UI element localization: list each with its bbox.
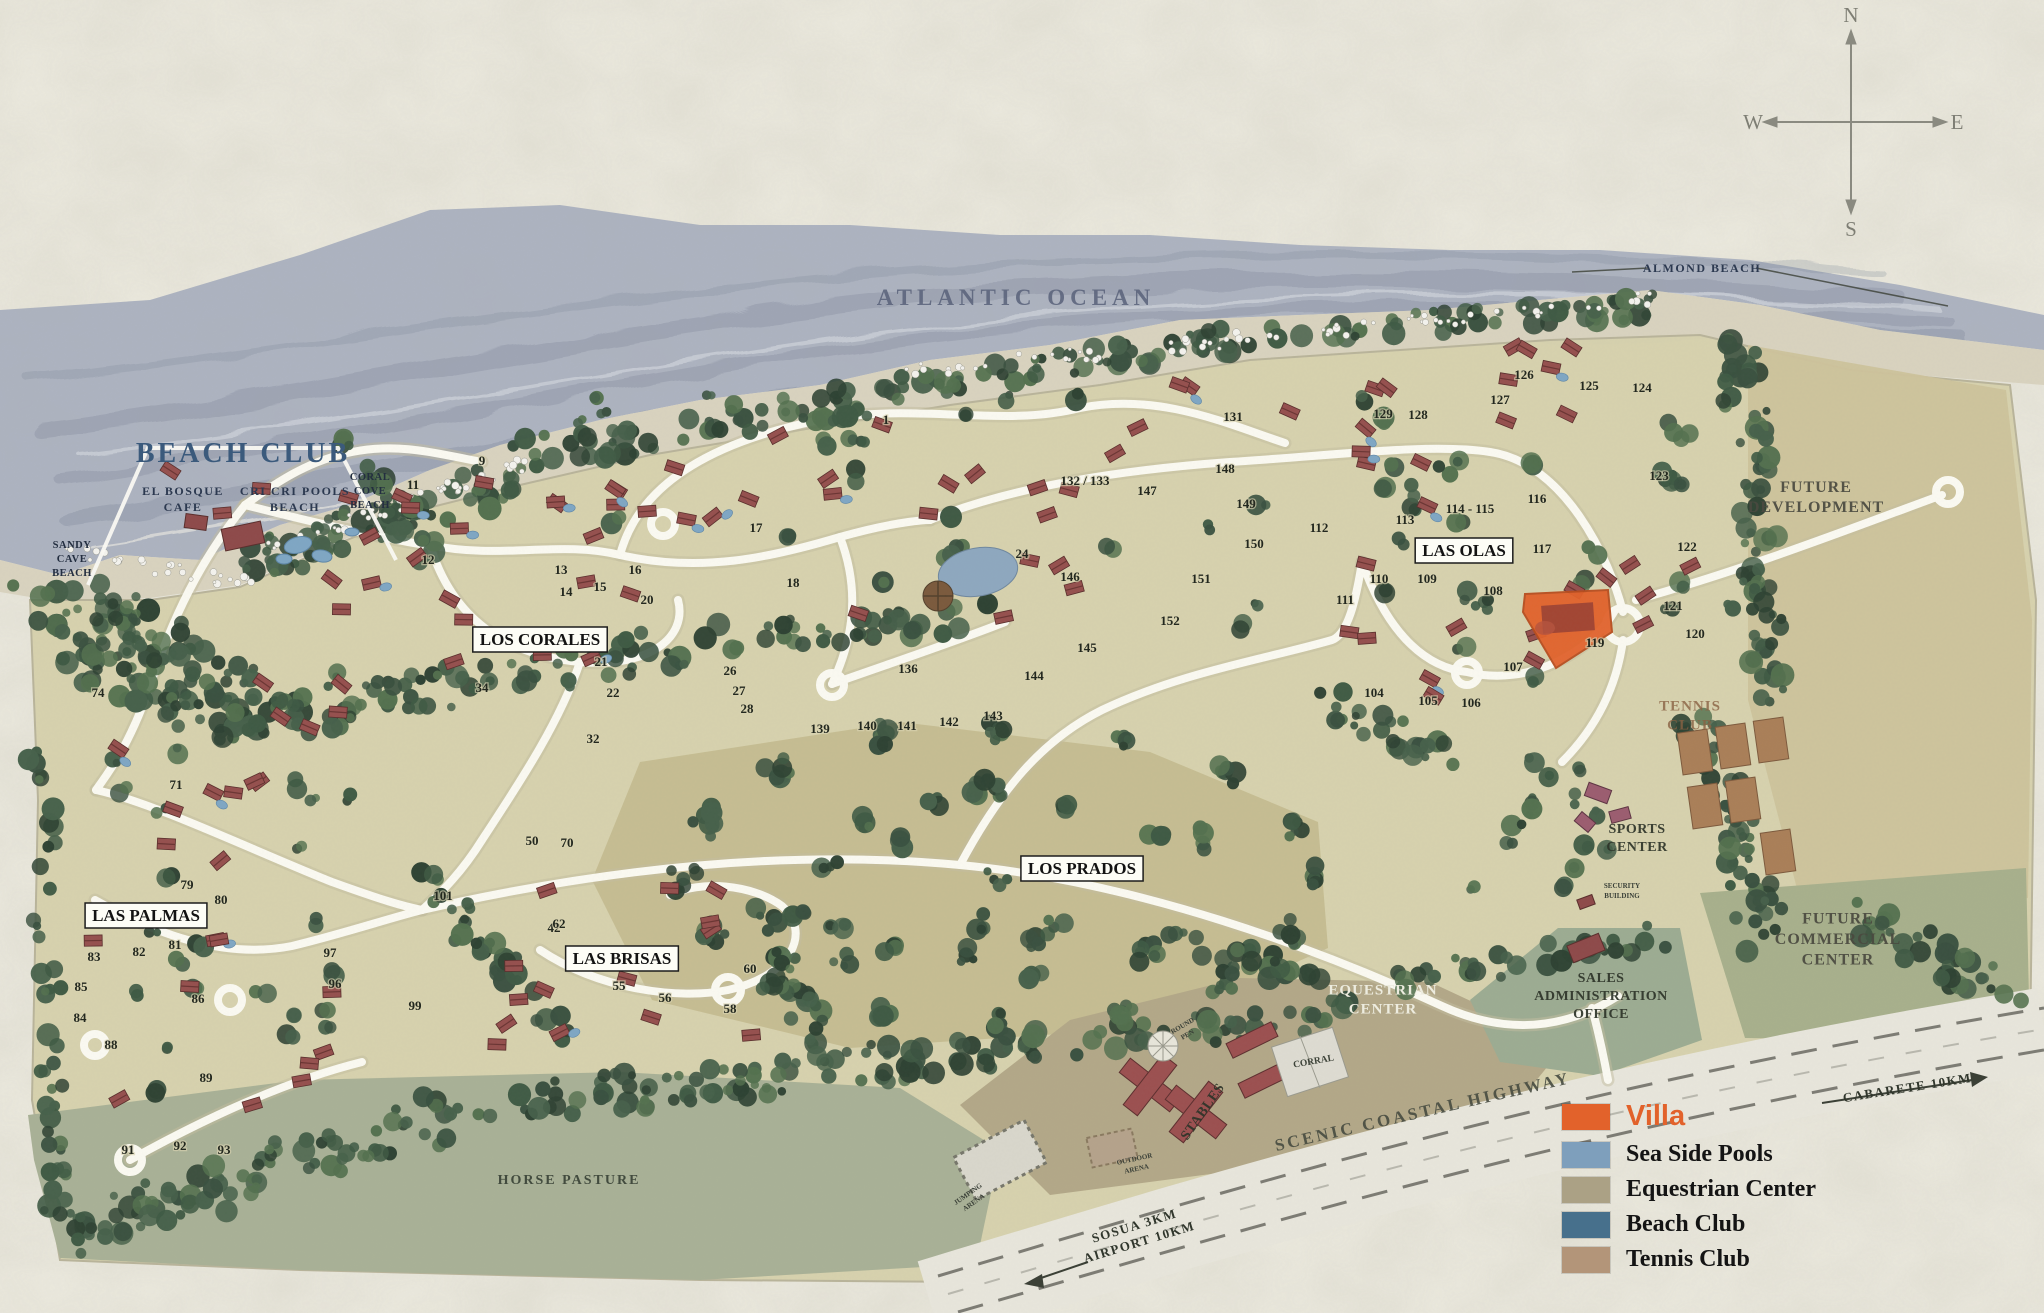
lot-127: 127	[1490, 392, 1510, 407]
svg-text:BEACH CLUB: BEACH CLUB	[136, 438, 350, 469]
map-legend: Villa Sea Side Pools Equestrian Center B…	[1562, 1100, 1862, 1281]
lot-74: 74	[92, 685, 106, 700]
legend-item-villa: Villa	[1562, 1100, 1862, 1133]
beach-club-swatch	[1562, 1212, 1610, 1238]
lot-142: 142	[939, 714, 959, 729]
lot-150: 150	[1244, 536, 1264, 551]
villa-building	[213, 507, 232, 520]
villa-building	[919, 507, 938, 520]
lot-110: 110	[1370, 571, 1389, 586]
lot-109: 109	[1417, 571, 1437, 586]
lot-116: 116	[1528, 491, 1547, 506]
resort-master-plan: N S E W 19111213141516171820212224262728…	[0, 0, 2044, 1313]
lot-12: 12	[422, 552, 435, 567]
villa-building	[505, 960, 523, 971]
svg-text:LAS BRISAS: LAS BRISAS	[573, 949, 672, 968]
lot-1: 1	[883, 412, 890, 427]
legend-label: Equestrian Center	[1626, 1176, 1816, 1203]
lot-123: 123	[1649, 468, 1669, 483]
lot-113: 113	[1396, 512, 1415, 527]
villa-building	[1340, 625, 1359, 638]
villa-building	[742, 1029, 761, 1042]
lot-14: 14	[560, 584, 574, 599]
equestrian-center-swatch	[1562, 1177, 1610, 1203]
svg-text:ALMOND BEACH: ALMOND BEACH	[1643, 261, 1761, 275]
villa-building	[332, 604, 350, 615]
lot-32: 32	[587, 731, 600, 746]
lot-146: 146	[1060, 569, 1080, 584]
villa-building	[157, 838, 176, 850]
lot-71: 71	[170, 777, 183, 792]
villa-building	[300, 1057, 319, 1070]
lot-18: 18	[787, 575, 801, 590]
lot-129: 129	[1373, 406, 1393, 421]
lot-91: 91	[122, 1142, 135, 1157]
lot-147: 147	[1137, 483, 1157, 498]
svg-text:LAS PALMAS: LAS PALMAS	[92, 906, 200, 925]
compass-south: S	[1845, 217, 1857, 241]
lot-50: 50	[526, 833, 539, 848]
lot-27: 27	[733, 683, 747, 698]
lot-58: 58	[724, 1001, 738, 1016]
legend-item-equestrian-center: Equestrian Center	[1562, 1176, 1862, 1203]
villa-building	[224, 786, 243, 799]
legend-label: Sea Side Pools	[1626, 1141, 1773, 1168]
lot-107: 107	[1503, 659, 1523, 674]
lot-11: 11	[407, 477, 419, 492]
label-las-palmas: LAS PALMAS	[85, 903, 207, 928]
svg-text:LOS CORALES: LOS CORALES	[480, 630, 600, 649]
label-coral-cove-beach: CORALCOVEBEACH	[350, 472, 390, 511]
svg-text:CORALCOVEBEACH: CORALCOVEBEACH	[350, 472, 390, 511]
lot-122: 122	[1677, 539, 1697, 554]
lot-85: 85	[75, 979, 89, 994]
lot-28: 28	[741, 701, 755, 716]
lot-22: 22	[607, 685, 620, 700]
lot-145: 145	[1077, 640, 1097, 655]
label-los-corales: LOS CORALES	[473, 627, 607, 652]
legend-label: Beach Club	[1626, 1211, 1745, 1238]
lot-149: 149	[1236, 496, 1256, 511]
svg-text:LAS OLAS: LAS OLAS	[1422, 541, 1506, 560]
lot-24: 24	[1016, 546, 1030, 561]
lot-139: 139	[810, 721, 830, 736]
lot-80: 80	[215, 892, 228, 907]
lot-81: 81	[169, 937, 182, 952]
compass-north: N	[1843, 3, 1858, 27]
lot-125: 125	[1579, 378, 1599, 393]
lot-112: 112	[1310, 520, 1329, 535]
lot-86: 86	[192, 991, 206, 1006]
svg-text:ATLANTIC OCEAN: ATLANTIC OCEAN	[877, 285, 1156, 310]
legend-label: Tennis Club	[1626, 1246, 1750, 1273]
tennis-club-swatch	[1562, 1247, 1610, 1273]
lot-15: 15	[594, 579, 608, 594]
lot-20: 20	[641, 592, 654, 607]
lot-108: 108	[1483, 583, 1503, 598]
label-almond-beach: ALMOND BEACH	[1643, 261, 1761, 275]
lot-104: 104	[1364, 685, 1384, 700]
lot-92: 92	[174, 1138, 187, 1153]
legend-label: Villa	[1626, 1100, 1685, 1133]
lot-96: 96	[329, 976, 343, 991]
future-development-field	[1748, 345, 2032, 908]
lot-21: 21	[595, 654, 608, 669]
label-las-olas: LAS OLAS	[1415, 538, 1513, 563]
lot-140: 140	[857, 718, 877, 733]
villa-building	[1358, 632, 1377, 644]
label-sandy-cave-beach: SANDYCAVEBEACH	[52, 540, 92, 579]
lot-9: 9	[479, 453, 486, 468]
lot-117: 117	[1533, 541, 1552, 556]
lot-114-115: 114 - 115	[1446, 501, 1495, 516]
lot-97: 97	[324, 945, 338, 960]
lot-152: 152	[1160, 613, 1180, 628]
lot-34: 34	[476, 680, 490, 695]
lot-70: 70	[561, 835, 574, 850]
label-beach-club: BEACH CLUB	[136, 438, 350, 469]
lot-106: 106	[1461, 695, 1481, 710]
villa-building	[488, 1039, 506, 1051]
lot-128: 128	[1408, 407, 1428, 422]
lot-79: 79	[181, 877, 195, 892]
villa-building	[455, 614, 473, 625]
lot-144: 144	[1024, 668, 1044, 683]
villa-swatch	[1562, 1104, 1610, 1130]
lot-141: 141	[897, 718, 917, 733]
lot-16: 16	[629, 562, 643, 577]
svg-text:SANDYCAVEBEACH: SANDYCAVEBEACH	[52, 540, 92, 579]
lot-105: 105	[1418, 693, 1438, 708]
villa-building	[509, 993, 528, 1005]
lot-131: 131	[1223, 409, 1243, 424]
lot-101: 101	[433, 888, 453, 903]
lot-120: 120	[1685, 626, 1705, 641]
villa-building	[84, 935, 102, 946]
lot-89: 89	[200, 1070, 214, 1085]
label-horse-pasture: HORSE PASTURE	[498, 1173, 641, 1188]
lot-143: 143	[983, 708, 1003, 723]
compass-west: W	[1743, 110, 1763, 134]
lot-111: 111	[1336, 592, 1354, 607]
svg-text:LOS PRADOS: LOS PRADOS	[1028, 859, 1136, 878]
label-las-brisas: LAS BRISAS	[566, 946, 679, 971]
label-los-prados: LOS PRADOS	[1021, 856, 1143, 881]
lot-17: 17	[750, 520, 764, 535]
legend-item-beach-club: Beach Club	[1562, 1211, 1862, 1238]
compass-east: E	[1951, 110, 1964, 134]
svg-text:HORSE PASTURE: HORSE PASTURE	[498, 1173, 641, 1188]
lot-62: 62	[553, 916, 566, 931]
label-atlantic-ocean: ATLANTIC OCEAN	[877, 285, 1156, 310]
lot-151: 151	[1191, 571, 1211, 586]
sea-side-pools-swatch	[1562, 1142, 1610, 1168]
villa-building	[329, 706, 348, 718]
lot-56: 56	[659, 990, 673, 1005]
lot-119: 119	[1586, 635, 1605, 650]
lot-99: 99	[409, 998, 423, 1013]
lot-136: 136	[898, 661, 918, 676]
lot-83: 83	[88, 949, 102, 964]
legend-item-tennis-club: Tennis Club	[1562, 1246, 1862, 1273]
lot-60: 60	[744, 961, 757, 976]
lot-124: 124	[1632, 380, 1652, 395]
lot-93: 93	[218, 1142, 232, 1157]
lot-82: 82	[133, 944, 146, 959]
lot-132-133: 132 / 133	[1060, 473, 1110, 488]
lot-88: 88	[105, 1037, 119, 1052]
lot-55: 55	[613, 978, 627, 993]
villa-building	[660, 882, 678, 894]
villa-building	[638, 505, 657, 517]
lot-13: 13	[555, 562, 569, 577]
lot-26: 26	[724, 663, 738, 678]
lot-126: 126	[1514, 367, 1534, 382]
lot-121: 121	[1663, 598, 1683, 613]
lot-84: 84	[74, 1010, 88, 1025]
lot-148: 148	[1215, 461, 1235, 476]
legend-item-sea-side-pools: Sea Side Pools	[1562, 1141, 1862, 1168]
